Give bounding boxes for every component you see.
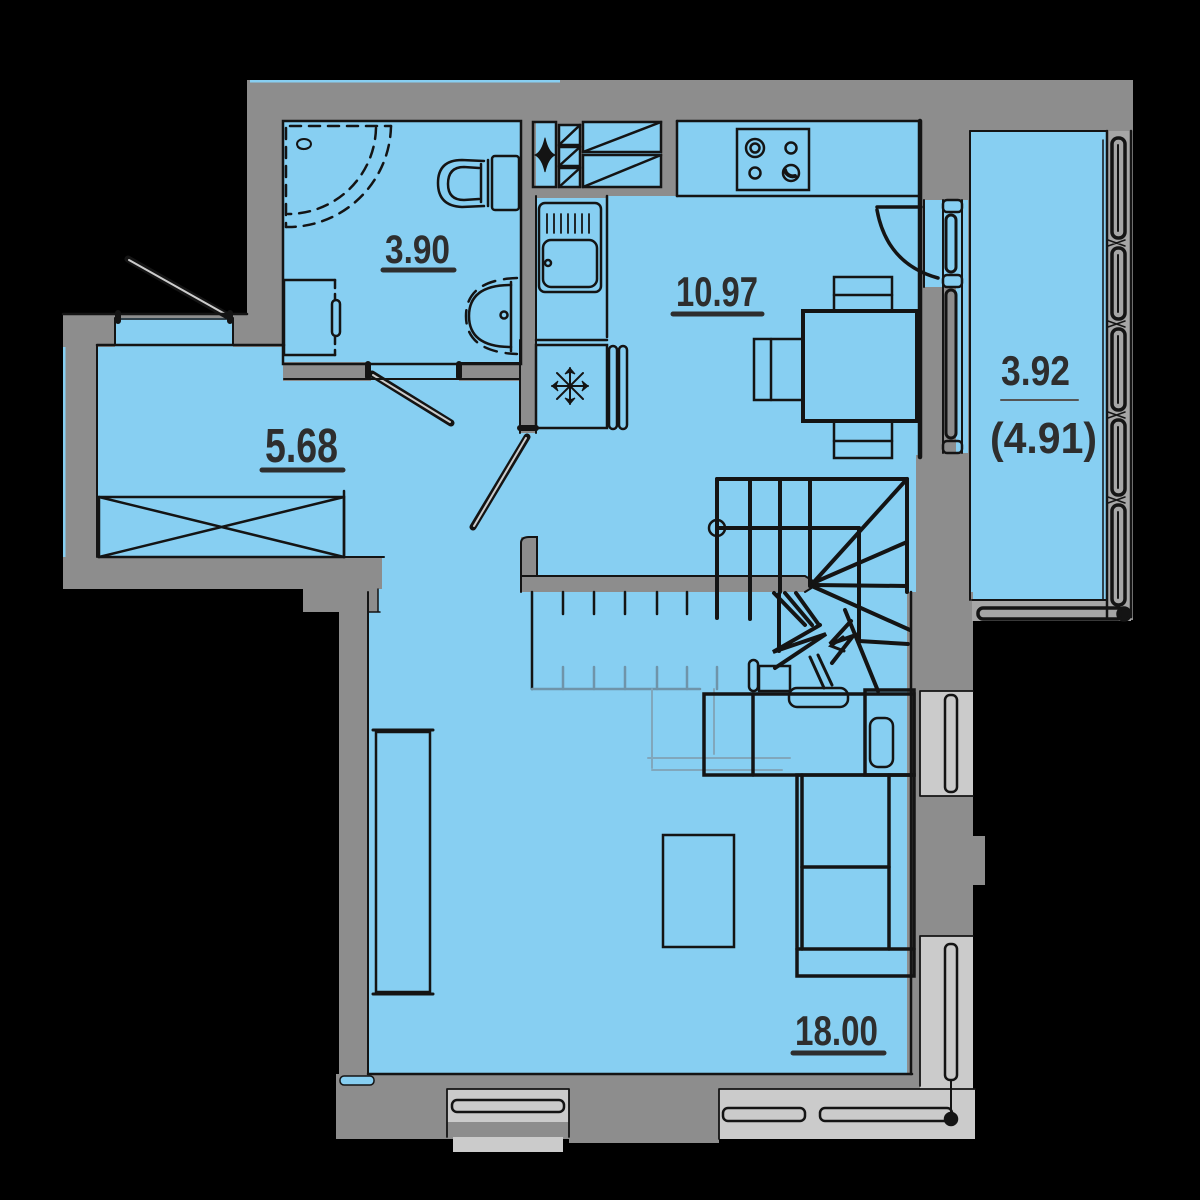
svg-text:(4.91): (4.91)	[990, 414, 1097, 463]
svg-text:18.00: 18.00	[795, 1007, 878, 1054]
svg-text:3.90: 3.90	[385, 228, 450, 272]
svg-text:5.68: 5.68	[265, 420, 338, 473]
svg-text:10.97: 10.97	[676, 268, 758, 315]
svg-text:3.92: 3.92	[1001, 347, 1070, 394]
